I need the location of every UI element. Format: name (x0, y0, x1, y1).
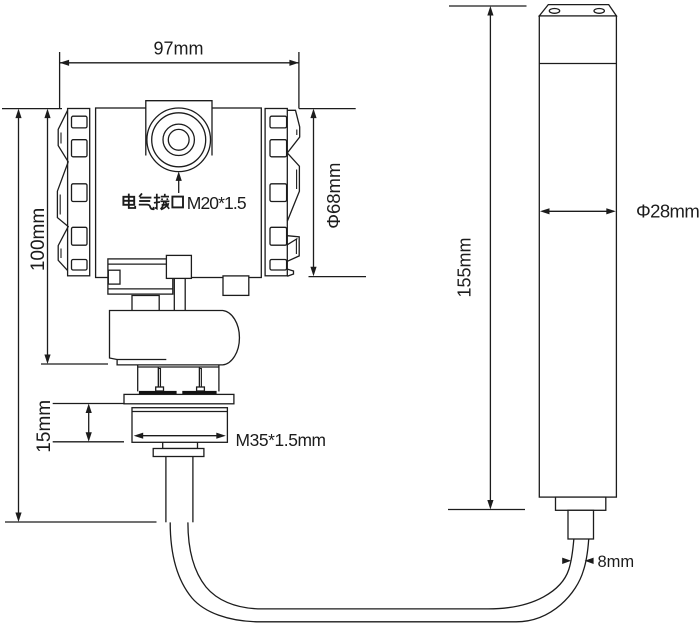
svg-text:Φ68mm: Φ68mm (323, 163, 344, 229)
svg-text:8mm: 8mm (598, 553, 635, 571)
svg-text:Φ28mm: Φ28mm (636, 201, 699, 222)
svg-text:155mm: 155mm (454, 237, 474, 297)
svg-text:M35*1.5mm: M35*1.5mm (236, 430, 326, 450)
svg-text:100mm: 100mm (28, 208, 49, 271)
svg-text:15mm: 15mm (34, 400, 55, 453)
svg-text:M20*1.5: M20*1.5 (187, 193, 246, 213)
svg-text:97mm: 97mm (153, 39, 203, 59)
